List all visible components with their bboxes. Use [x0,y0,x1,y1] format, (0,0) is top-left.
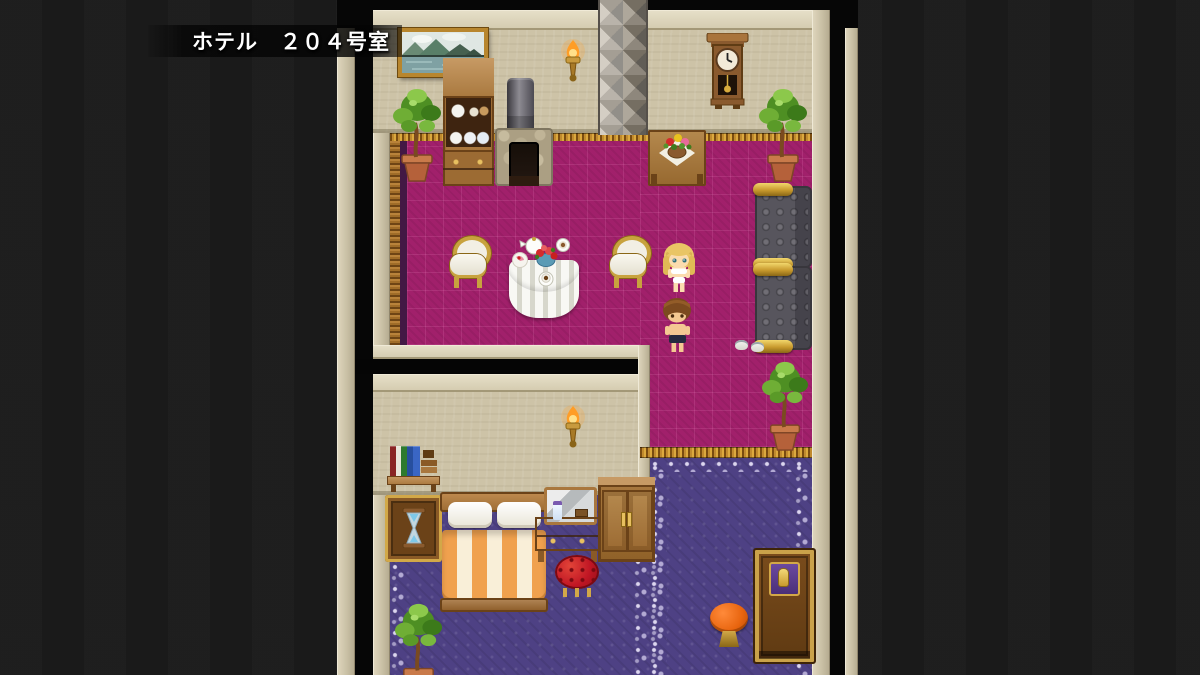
location-label: ホテル ２０４号室 [192,26,390,56]
shelf-board [387,476,440,485]
divider-wall-end [638,345,650,495]
table-base [719,631,739,647]
vanity-drawers [535,517,600,551]
pillow [448,502,492,528]
game-viewport[interactable] [337,0,858,675]
bookshelf [387,440,440,492]
upper-wall-cap [373,10,812,30]
red-stool [555,555,599,597]
location-banner: ホテル ２０４号室 [148,25,402,57]
hourglass-table [385,495,442,562]
potted-plant-3 [758,358,812,452]
divider-wall-top-gap [355,359,638,374]
sofa-bottom [755,266,812,350]
round-dining-table [506,232,582,322]
divider-wall-cap [373,345,650,359]
bed [440,492,548,612]
door-sill [759,651,810,659]
slipper [735,340,748,350]
cabinet-top [443,58,494,98]
cabinet-drawers [443,150,494,186]
potted-plant-1 [390,85,444,183]
bed-footboard [440,598,548,612]
divider-wall-band [373,374,650,392]
sofa-cushions [759,270,808,346]
table-legs [651,174,703,186]
book-stack [421,460,437,466]
china-cabinet [443,58,494,186]
wardrobe-handle [622,513,625,526]
game-screen: ホテル ２０４号室 [0,0,1200,675]
flower-pot-icon [660,130,694,160]
door-handle-icon [779,569,788,586]
chair-seat [450,254,486,278]
wardrobe-cornice [598,477,655,487]
orange-side-table [710,603,748,652]
wall-lamp-icon [560,38,586,84]
stove-chimney [507,78,534,134]
girl-character[interactable] [658,240,700,298]
dining-chair-right [608,236,648,292]
book-spines [390,446,420,476]
sofa-armrest [753,263,793,276]
dining-chair-left [448,236,488,292]
wall-lamp-icon [560,404,586,450]
potted-plant-4 [392,600,445,675]
hall-carpet-border-top [650,458,812,472]
flower-table [648,130,706,186]
potted-plant-2 [756,85,810,183]
chair-legs [614,277,642,288]
stool-legs [563,588,591,597]
boy-character[interactable] [655,296,700,358]
table-top [710,603,748,633]
cabinet-shelves [446,98,491,150]
wall-clock [705,33,750,109]
chair-seat [610,254,646,278]
stove-mouth [509,142,539,186]
tea-setting-icon [506,232,582,294]
tiled-pillar [598,0,648,135]
hourglass-icon [401,508,427,548]
bed-blanket [442,530,546,602]
outer-wall-right [845,28,858,675]
sofa-armrest [753,183,793,196]
sofa-top [755,186,812,268]
wardrobe [598,477,655,562]
perfume-bottle-icon [553,501,562,520]
wardrobe-handle [628,513,631,526]
sofa-cushions [759,190,808,264]
stool-cushion [555,555,599,589]
shelf-legs [391,485,436,492]
outer-wall-left [337,28,355,675]
book-stack [423,450,434,458]
jewelry-box-icon [575,509,588,517]
stone-stove [495,78,553,186]
vanity-dresser [535,487,600,562]
room-door[interactable] [753,548,816,664]
chair-legs [454,277,482,288]
slipper [751,342,764,352]
